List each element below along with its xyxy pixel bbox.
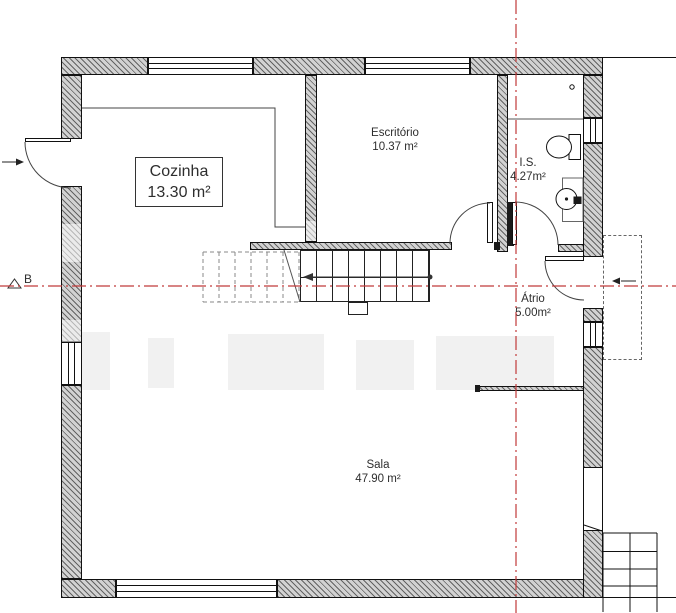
room-area: 5.00m² — [502, 306, 564, 320]
entry-arrow-left — [2, 159, 24, 166]
window-bottom-sala — [116, 579, 277, 598]
stairs — [300, 250, 430, 302]
watermark — [356, 340, 414, 390]
kitchen-door-swing-arc — [25, 142, 71, 188]
wall-kitchen-office — [305, 75, 317, 242]
window-left — [61, 342, 82, 385]
room-area: 47.90 m² — [328, 472, 428, 486]
room-label-is: I.S. 4.27m² — [500, 156, 556, 184]
wall-atrio-sala-divider — [475, 386, 584, 391]
room-label-escritorio: Escritório 10.37 m² — [335, 126, 455, 154]
wall-top-c — [470, 57, 603, 75]
wall-bottom-b — [277, 579, 584, 598]
section-letter: B — [24, 272, 32, 286]
window-top-kitchen — [148, 57, 253, 75]
wall-is-south — [558, 244, 584, 252]
window-right-is — [583, 118, 603, 143]
office-door-swing-arc — [450, 203, 490, 243]
room-area: 4.27m² — [500, 170, 556, 184]
is-door-swing-arc — [515, 202, 558, 245]
room-label-sala: Sala 47.90 m² — [328, 458, 428, 486]
room-name: Cozinha — [150, 163, 209, 181]
wall-left-lower — [61, 385, 82, 579]
stairs-dashed-flight — [203, 252, 300, 302]
wall-right-d — [583, 347, 603, 468]
drain-icon — [570, 85, 574, 89]
stair-break-line — [284, 250, 300, 302]
window-right-atrio — [583, 322, 603, 347]
divider-end-cap — [475, 385, 480, 392]
wall-bottom-a — [61, 579, 116, 598]
room-area: 10.37 m² — [335, 140, 455, 154]
watermark — [228, 334, 324, 390]
sink-icon — [556, 178, 583, 222]
section-marker-label: B — [20, 272, 36, 286]
wall-right-opening — [583, 468, 603, 530]
wall-top-b — [253, 57, 365, 75]
wall-left-upper — [61, 75, 82, 139]
stair-mid-line — [301, 277, 429, 278]
wall-right-a — [583, 75, 603, 118]
wall-top-a — [61, 57, 148, 75]
watermark — [62, 224, 81, 262]
room-area: 13.30 m² — [147, 184, 210, 202]
wall-right-corner — [583, 530, 603, 598]
wall-left-mid — [61, 186, 82, 342]
wall-right-c — [583, 308, 603, 322]
window-top-office — [365, 57, 470, 75]
room-name: Sala — [328, 458, 428, 472]
room-name: I.S. — [500, 156, 556, 170]
wall-right-b — [583, 143, 603, 257]
office-door-jamb — [494, 242, 500, 250]
room-label-cozinha: Cozinha 13.30 m² — [135, 157, 223, 207]
wall-hall — [250, 242, 452, 250]
linework-overlay — [0, 0, 676, 613]
watermark — [148, 338, 174, 388]
porch-outline — [603, 235, 642, 360]
watermark — [306, 221, 316, 241]
room-label-atrio: Átrio 5.00m² — [502, 292, 564, 320]
is-door-leaf — [512, 202, 517, 245]
floor-plan-canvas: Cozinha 13.30 m² Escritório 10.37 m² I.S… — [0, 0, 676, 613]
front-door-leaf — [545, 256, 584, 261]
stair-entry-step — [348, 302, 368, 315]
kitchen-exterior-door-leaf — [25, 138, 71, 142]
exterior-steps — [603, 533, 657, 612]
room-name: Átrio — [502, 292, 564, 306]
watermark — [62, 320, 81, 342]
office-door-leaf — [487, 202, 493, 243]
watermark — [436, 336, 554, 390]
room-name: Escritório — [335, 126, 455, 140]
